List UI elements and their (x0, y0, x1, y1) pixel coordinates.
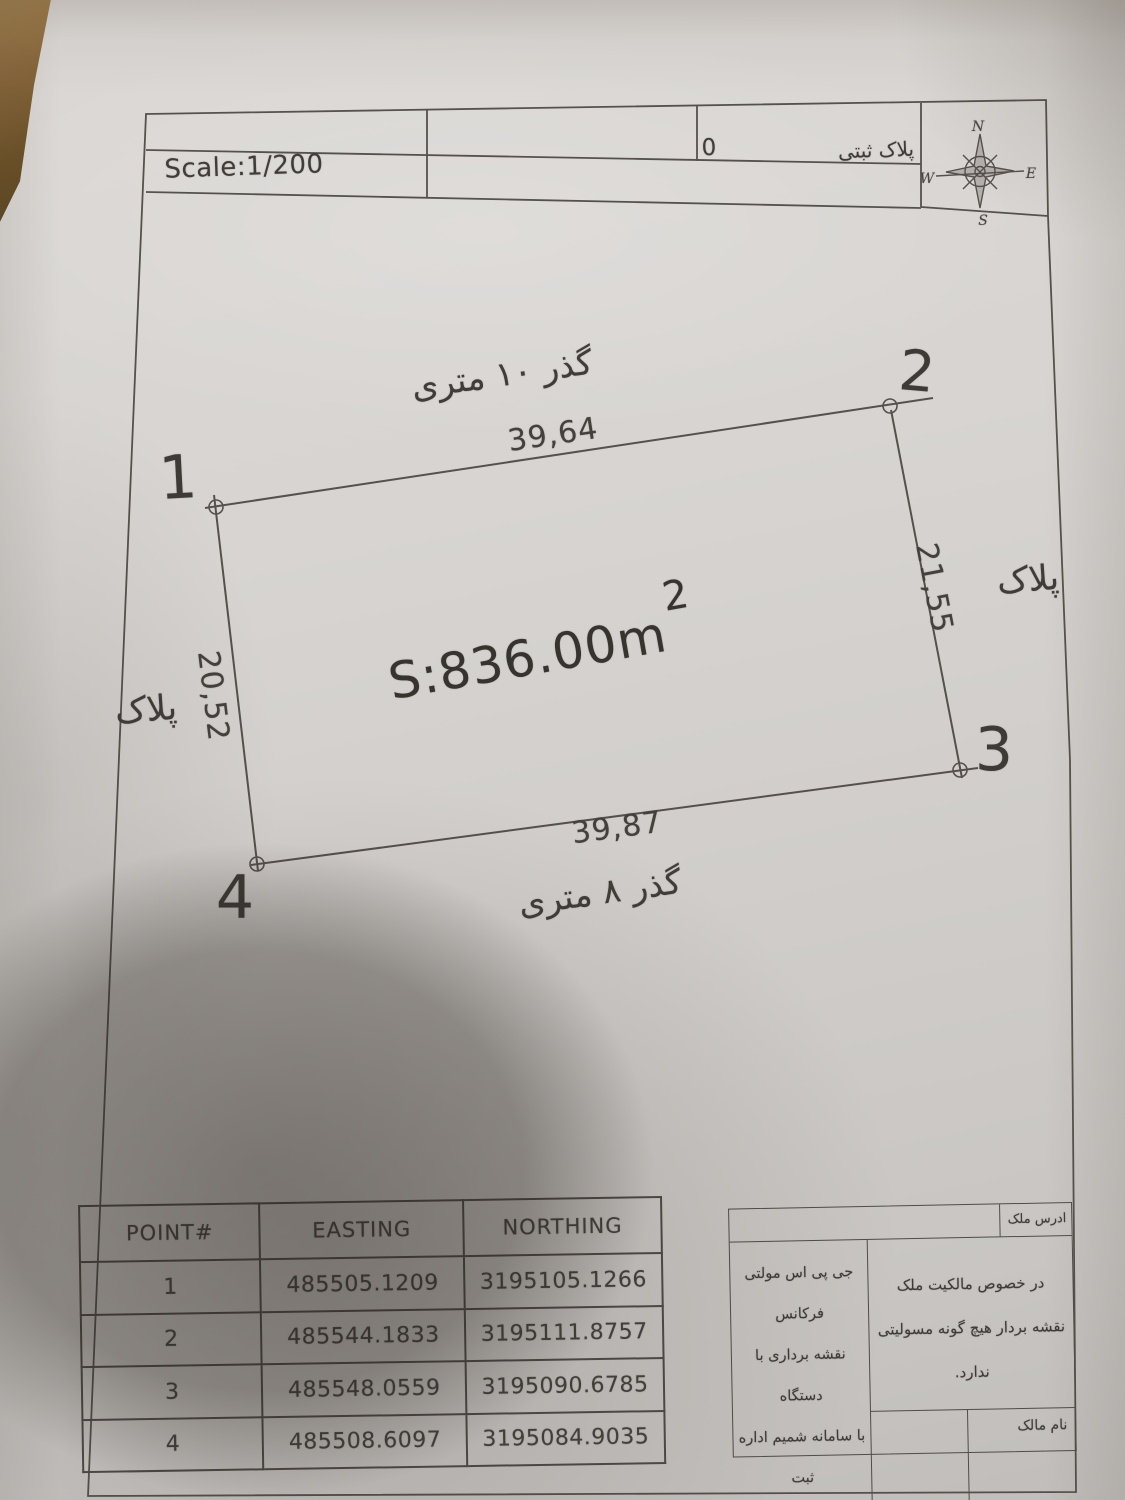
cell-easting: 485548.0559 (262, 1361, 466, 1417)
point-number-2: 2 (896, 338, 937, 406)
owner-value-cell (871, 1410, 971, 1500)
info-main: جی پی اس مولتی فرکانس نقشه برداری با دست… (730, 1236, 1078, 1500)
survey-method-cell: جی پی اس مولتی فرکانس نقشه برداری با دست… (730, 1240, 875, 1500)
method-line: با سامانه شمیم اداره ثبت (733, 1416, 872, 1500)
compass-east-letter: E (1026, 166, 1036, 182)
owner-label: نام مالک (968, 1408, 1078, 1500)
cell-northing: 3195111.8757 (465, 1306, 664, 1362)
header-point: POINT# (79, 1203, 260, 1262)
disclaimer-line: در خصوص مالکیت ملک (868, 1260, 1073, 1308)
coordinates-table-container: POINT# EASTING NORTHING 1 485505.1209 31… (78, 1196, 666, 1473)
cell-northing: 3195105.1266 (464, 1253, 663, 1309)
cell-point: 3 (82, 1364, 263, 1419)
compass-west-letter: W (920, 171, 934, 187)
table-header-row: POINT# EASTING NORTHING (79, 1197, 662, 1262)
cell-easting: 485508.6097 (263, 1414, 467, 1470)
table-row: 4 485508.6097 3195084.9035 (82, 1410, 665, 1472)
coordinates-table: POINT# EASTING NORTHING 1 485505.1209 31… (78, 1196, 666, 1473)
cell-northing: 3195084.9035 (466, 1410, 665, 1466)
cell-point: 4 (82, 1417, 263, 1472)
cell-easting: 485505.1209 (260, 1256, 464, 1312)
header-northing: NORTHING (463, 1197, 662, 1256)
point-number-4: 4 (216, 863, 254, 933)
cell-easting: 485544.1833 (261, 1309, 465, 1365)
header-easting: EASTING (259, 1200, 464, 1259)
titleblock-bottom-line (146, 192, 921, 208)
compass-rose-icon (936, 134, 1024, 208)
info-block: ادرس ملک جی پی اس مولتی فرکانس نقشه بردا… (728, 1202, 1077, 1458)
table-row: 3 485548.0559 3195090.6785 (82, 1358, 665, 1420)
compass-north-letter: N (972, 119, 984, 135)
neighbor-label-left: پلاک (114, 688, 179, 732)
method-line: نقشه برداری با دستگاه (732, 1334, 871, 1419)
neighbor-label-right: پلاک (996, 558, 1061, 602)
address-value-cell (729, 1204, 1000, 1241)
disclaimer-cell: در خصوص مالکیت ملک نقشه بردار هیچ گونه م… (868, 1236, 1075, 1412)
cell-point: 2 (81, 1312, 262, 1367)
registered-plate-label: پلاک ثبتی (838, 137, 915, 164)
table-row: 1 485505.1209 3195105.1266 (80, 1253, 663, 1315)
scale-label: Scale:1/200 (164, 149, 324, 185)
point-number-3: 3 (975, 715, 1013, 785)
registered-plate-value: 0 (701, 135, 717, 161)
point-number-1: 1 (157, 442, 199, 514)
owner-row: نام مالک (871, 1408, 1078, 1500)
cell-point: 1 (80, 1259, 261, 1314)
cell-northing: 3195090.6785 (466, 1358, 665, 1414)
disclaimer-line: نقشه بردار هیچ گونه مسولیتی ندارد. (869, 1304, 1075, 1396)
compass-south-letter: S (978, 213, 988, 229)
table-row: 2 485544.1833 3195111.8757 (81, 1306, 664, 1368)
info-right-column: در خصوص مالکیت ملک نقشه بردار هیچ گونه م… (868, 1236, 1078, 1500)
method-line: جی پی اس مولتی فرکانس (730, 1252, 869, 1337)
address-label: ادرس ملک (999, 1203, 1072, 1236)
photo-of-survey-document: Scale:1/200 0 پلاک ثبتی N E S W 1 2 3 4 … (0, 0, 1125, 1500)
